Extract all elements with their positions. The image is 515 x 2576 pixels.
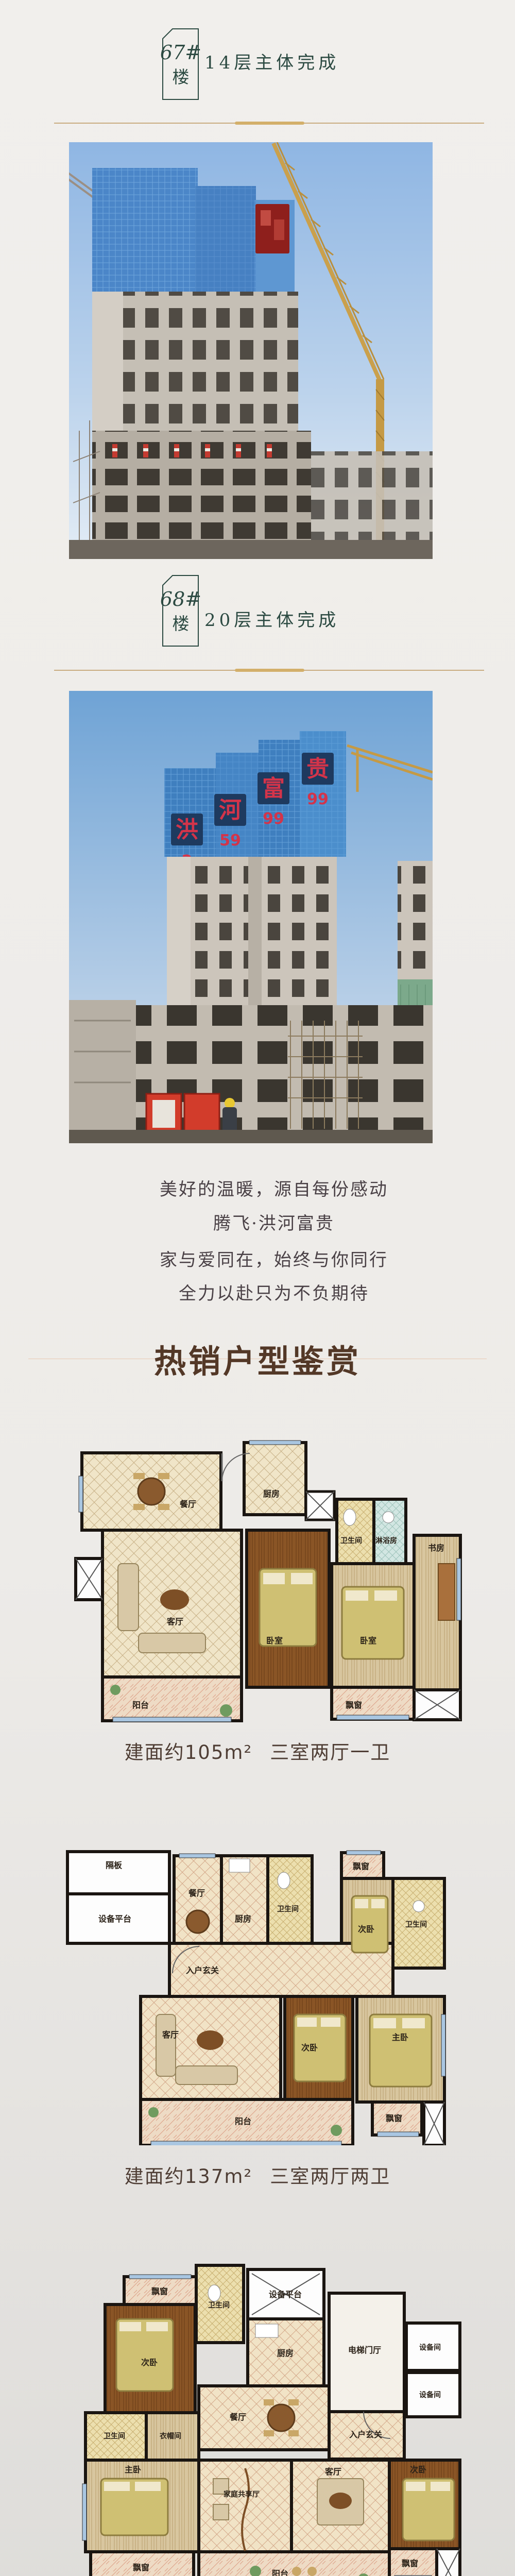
room-label: 隔板: [106, 1860, 123, 1870]
room-label: 餐厅: [179, 1499, 196, 1509]
floorplan-105-caption: 建面约105m²三室两厅一卫: [33, 1741, 482, 1764]
room-label: 次卧: [410, 2465, 426, 2475]
room-label: 卧室: [360, 1636, 376, 1646]
room-label: 卫生间: [277, 1905, 299, 1913]
building-68-status: 20层主体完成: [204, 610, 339, 631]
room-label: 飘窗: [133, 2563, 149, 2572]
room-label: 设备平台: [269, 2290, 302, 2299]
room-label: 飘窗: [353, 1861, 369, 1871]
building-67-label-box: 67# 楼: [162, 28, 199, 100]
banner-digits: 59: [219, 832, 241, 850]
building-68-suffix: 楼: [173, 615, 190, 632]
room-label: 飘窗: [402, 2558, 418, 2568]
floorplan-105-image[interactable]: 餐厅 厨房 卫生间 淋浴房 书房 客厅 卧室 卧室 阳台 飘窗: [72, 1440, 463, 1729]
banner-char: 富: [262, 775, 285, 802]
room-label: 次卧: [301, 2043, 318, 2053]
room-label: 客厅: [167, 1617, 183, 1626]
room-label: 入户玄关: [186, 1965, 219, 1975]
construction-photo-68[interactable]: 洪 河 富 贵 2 59 99 99: [69, 691, 433, 1143]
room-label: 厨房: [235, 1914, 251, 1924]
banner-digits: 99: [263, 810, 284, 828]
room-label: 卧室: [266, 1636, 283, 1646]
floorplan-137-image[interactable]: 隔板 设备平台 餐厅 厨房 卫生间 飘窗 次卧 卫生间 入户玄关 客厅 次卧 主…: [63, 1850, 448, 2145]
room-label: 餐厅: [229, 2412, 246, 2422]
building-68-label-box: 68# 楼: [162, 575, 199, 647]
banner-char: 贵: [306, 756, 329, 782]
room-label: 设备平台: [98, 1914, 131, 1924]
banner-digits: 99: [307, 790, 329, 808]
building-67-number: 67#: [160, 43, 201, 62]
floorplan-137-caption: 建面约137m²三室两厅两卫: [33, 2165, 482, 2188]
room-label: 设备间: [419, 2391, 441, 2399]
poem-line-4: 全力以赴只为不负期待: [31, 1283, 515, 1304]
gold-divider-bold: [235, 122, 304, 125]
room-label: 卫生间: [405, 1920, 427, 1929]
banner-char: 河: [219, 797, 242, 823]
building-67-status: 14层主体完成: [204, 53, 339, 73]
room-label: 厨房: [263, 1489, 280, 1499]
article-page: 67# 楼 14层主体完成: [0, 0, 515, 2576]
room-label: 设备间: [419, 2343, 441, 2352]
room-label: 主卧: [125, 2465, 141, 2475]
building-68-number: 68#: [160, 589, 201, 609]
room-label: 飘窗: [386, 2113, 402, 2123]
room-label: 飘窗: [346, 1700, 362, 1710]
building-67-suffix: 楼: [173, 69, 190, 86]
poem-line-1: 美好的温暖，源自每份感动: [31, 1179, 515, 1200]
room-label: 电梯门厅: [348, 2345, 381, 2355]
gold-divider-bold: [235, 669, 304, 672]
room-label: 厨房: [277, 2348, 294, 2358]
room-label: 主卧: [392, 2032, 408, 2042]
room-label: 阳台: [235, 2116, 251, 2126]
room-label: 家庭共享厅: [224, 2490, 260, 2499]
room-label: 入户玄关: [349, 2430, 382, 2439]
room-label: 次卧: [141, 2358, 158, 2367]
floorplan-143-image[interactable]: 飘窗 卫生间 设备平台 次卧 厨房 电梯门厅 设备间 设备间 餐厅 入户玄关 卫…: [75, 2262, 465, 2576]
room-label: 飘窗: [151, 2286, 168, 2296]
room-label: 衣帽间: [160, 2432, 181, 2441]
room-label: 卫生间: [104, 2432, 125, 2441]
room-label: 阳台: [272, 2569, 288, 2576]
page-title: 热销户型鉴赏: [0, 1335, 515, 1382]
poem-line-2: 腾飞·洪河富贵: [31, 1213, 515, 1234]
room-label: 次卧: [358, 1924, 374, 1934]
poem-line-3: 家与爱同在，始终与你同行: [31, 1250, 515, 1270]
construction-photo-67[interactable]: [69, 142, 433, 559]
room-label: 卫生间: [340, 1536, 362, 1545]
room-label: 客厅: [325, 2467, 341, 2477]
banner-char: 洪: [176, 817, 198, 843]
room-label: 卫生间: [208, 2301, 230, 2310]
room-label: 餐厅: [188, 1888, 205, 1898]
red-sign: [255, 204, 289, 253]
room-label: 阳台: [132, 1700, 149, 1710]
room-label: 淋浴房: [375, 1536, 397, 1545]
room-label: 客厅: [162, 2030, 179, 2040]
room-label: 书房: [428, 1543, 444, 1553]
